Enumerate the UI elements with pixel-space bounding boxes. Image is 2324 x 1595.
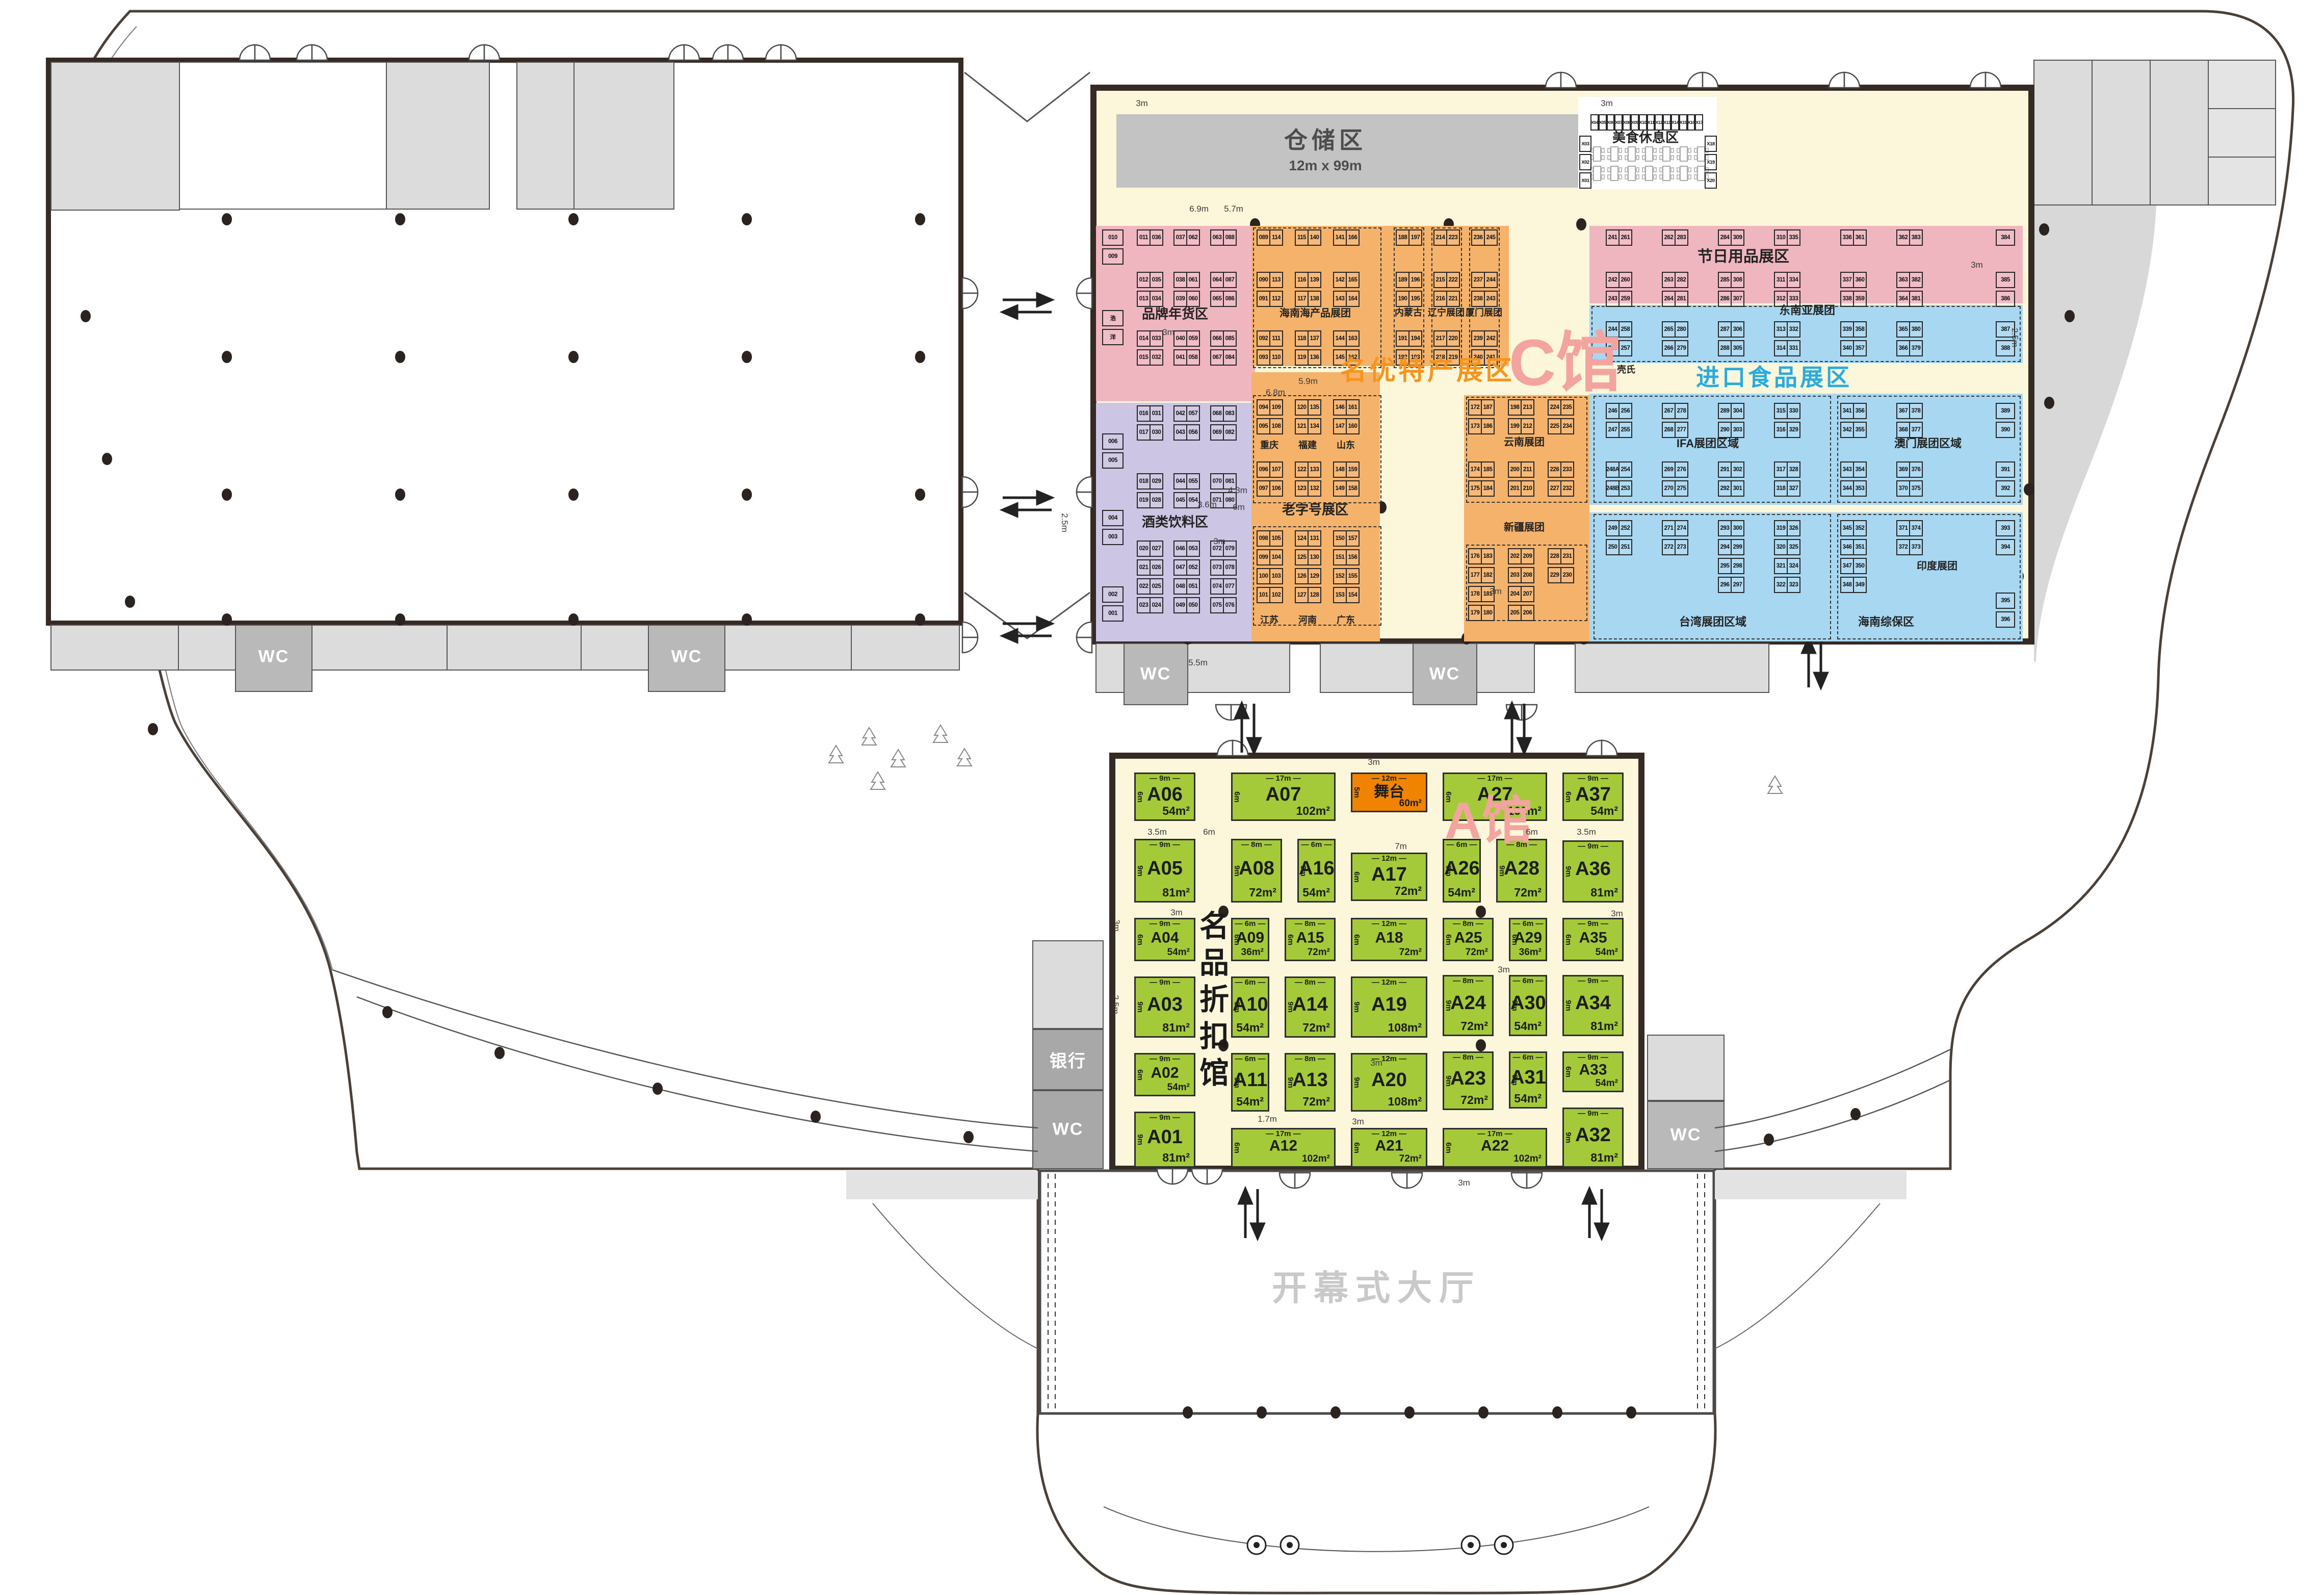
booth-314-331[interactable]: 314331 xyxy=(1774,340,1800,356)
booth-272-273[interactable]: 272273 xyxy=(1662,539,1688,555)
booth-365-380[interactable]: 365380 xyxy=(1896,321,1923,338)
column-dot xyxy=(395,613,405,626)
booth-A17[interactable]: — 12m —6mA1772m² xyxy=(1351,853,1427,901)
booth-number: 035 xyxy=(1150,273,1162,287)
booth-A25[interactable]: — 8m —6mA2572m² xyxy=(1443,918,1494,961)
booth-075-076[interactable]: 075076 xyxy=(1210,597,1237,613)
booth-371-374[interactable]: 371374 xyxy=(1896,520,1923,536)
booth-number: 317 xyxy=(1775,462,1787,477)
booth-number: 185 xyxy=(1481,462,1494,477)
booth-151-156[interactable]: 151156 xyxy=(1333,549,1360,565)
booth-227-232[interactable]: 227232 xyxy=(1548,480,1574,497)
booth-115-140[interactable]: 115140 xyxy=(1295,229,1321,246)
booth-248A-254[interactable]: 248A254 xyxy=(1606,461,1632,478)
booth-319-326[interactable]: 319326 xyxy=(1774,520,1800,536)
booth-153-154[interactable]: 153154 xyxy=(1333,587,1360,603)
booth-286-307[interactable]: 286307 xyxy=(1718,291,1744,307)
booth-203-208[interactable]: 203208 xyxy=(1508,567,1534,583)
booth-A16[interactable]: — 6m —9mA1654m² xyxy=(1297,839,1336,903)
booth-372-373[interactable]: 372373 xyxy=(1896,539,1923,555)
booth-322-323[interactable]: 322323 xyxy=(1774,577,1800,593)
booth-095-108[interactable]: 095108 xyxy=(1257,418,1283,434)
dimension-label: 3.6m xyxy=(1197,500,1217,510)
booth-296-297[interactable]: 296297 xyxy=(1718,577,1744,593)
booth-number: 066 xyxy=(1211,331,1223,346)
booth-X04[interactable]: X04 xyxy=(1590,114,1599,131)
booth-391[interactable]: 391 xyxy=(1996,461,2015,478)
booth-014-033[interactable]: 014033 xyxy=(1137,330,1163,347)
booth-number: 284 xyxy=(1719,230,1731,245)
booth-A09[interactable]: — 6m —6mA0936m² xyxy=(1231,918,1269,961)
booth-389[interactable]: 389 xyxy=(1996,403,2015,419)
door-icon xyxy=(1077,278,1092,308)
booth-number: 091 xyxy=(1258,292,1269,306)
booth-202-209[interactable]: 202209 xyxy=(1508,548,1534,564)
booth-338-359[interactable]: 338359 xyxy=(1840,291,1867,307)
booth-239-242[interactable]: 239242 xyxy=(1471,330,1498,347)
booth-A35[interactable]: — 9m —6mA3554m² xyxy=(1562,918,1624,961)
booth-X05[interactable]: X05 xyxy=(1599,114,1607,131)
booth-A03[interactable]: — 9m —9mA0381m² xyxy=(1134,976,1195,1038)
booth-A22[interactable]: — 17m —6mA22102m² xyxy=(1443,1128,1547,1168)
booth-number: 208 xyxy=(1521,568,1533,582)
booth-040-059[interactable]: 040059 xyxy=(1173,330,1200,347)
booth-394[interactable]: 394 xyxy=(1996,539,2015,555)
booth-288-305[interactable]: 288305 xyxy=(1718,340,1744,356)
booth-X19[interactable]: X19 xyxy=(1705,154,1717,170)
booth-020-027[interactable]: 020027 xyxy=(1137,541,1163,557)
booth-number: 159 xyxy=(1346,462,1359,477)
booth-A07[interactable]: — 17m —6mA07102m² xyxy=(1231,773,1336,821)
booth-068-083[interactable]: 068083 xyxy=(1210,405,1237,422)
booth-363-382[interactable]: 363382 xyxy=(1896,272,1923,288)
booth-348-349[interactable]: 348349 xyxy=(1840,577,1867,593)
booth-205-206[interactable]: 205206 xyxy=(1508,605,1534,621)
booth-number: 381 xyxy=(1909,292,1922,306)
chair-icon xyxy=(1660,156,1662,160)
booth-number: X18 xyxy=(1706,137,1716,151)
booth-342-355[interactable]: 342355 xyxy=(1840,422,1867,438)
booth-number: 230 xyxy=(1560,568,1573,582)
booth-124-131[interactable]: 124131 xyxy=(1295,530,1321,547)
booth-X02[interactable]: X02 xyxy=(1579,154,1591,170)
booth-099-104[interactable]: 099104 xyxy=(1257,549,1283,565)
booth-number: 259 xyxy=(1618,292,1631,306)
booth-142-165[interactable]: 142165 xyxy=(1333,272,1360,288)
table-icon xyxy=(1663,147,1670,161)
booth-A12[interactable]: — 17m —6mA12102m² xyxy=(1231,1128,1336,1168)
column-dot xyxy=(395,351,405,363)
booth-199-212[interactable]: 199212 xyxy=(1508,418,1534,434)
booth-038-061[interactable]: 038061 xyxy=(1173,272,1200,288)
booth-089-114[interactable]: 089114 xyxy=(1257,229,1283,246)
booth-number: 276 xyxy=(1675,462,1687,477)
booth-096-107[interactable]: 096107 xyxy=(1257,461,1283,478)
booth-341-356[interactable]: 341356 xyxy=(1840,403,1867,419)
booth-101-102[interactable]: 101102 xyxy=(1257,587,1283,603)
booth-A15[interactable]: — 8m —6mA1572m² xyxy=(1285,918,1336,961)
booth-366-379[interactable]: 366379 xyxy=(1896,340,1923,356)
booth-337-360[interactable]: 337360 xyxy=(1840,272,1867,288)
booth-012-035[interactable]: 012035 xyxy=(1137,272,1163,288)
booth-area: 54m² xyxy=(1167,947,1190,958)
dimension-label: 3m xyxy=(1370,1058,1382,1068)
booth-002[interactable]: 002 xyxy=(1102,586,1124,603)
booth-118-137[interactable]: 118137 xyxy=(1295,330,1321,347)
booth-number: 242 xyxy=(1484,331,1497,346)
booth-116-139[interactable]: 116139 xyxy=(1295,272,1321,288)
booth-number: 355 xyxy=(1853,423,1866,437)
booth-120-135[interactable]: 120135 xyxy=(1295,399,1321,416)
booth-number: 146 xyxy=(1334,400,1346,415)
booth-188-197[interactable]: 188197 xyxy=(1396,229,1422,246)
booth-225-234[interactable]: 225234 xyxy=(1548,418,1574,434)
booth-number: 323 xyxy=(1787,578,1799,592)
booth-A14[interactable]: — 8m —9mA1472m² xyxy=(1285,976,1336,1038)
booth-384[interactable]: 384 xyxy=(1996,229,2015,246)
booth-247-255[interactable]: 247255 xyxy=(1606,422,1632,438)
column-dot xyxy=(742,213,752,225)
booth-019-028[interactable]: 019028 xyxy=(1137,492,1163,508)
booth-X15[interactable]: X15 xyxy=(1679,114,1687,131)
booth-021-026[interactable]: 021026 xyxy=(1137,559,1163,576)
booth-346-351[interactable]: 346351 xyxy=(1840,539,1867,555)
booth-228-231[interactable]: 228231 xyxy=(1548,548,1574,564)
booth-238-243[interactable]: 238243 xyxy=(1471,291,1498,307)
booth-336-361[interactable]: 336361 xyxy=(1840,229,1867,246)
booth-141-166[interactable]: 141166 xyxy=(1333,229,1360,246)
booth-344-353[interactable]: 344353 xyxy=(1840,480,1867,497)
booth-248B-253[interactable]: 248B253 xyxy=(1606,480,1632,497)
booth-id: A22 xyxy=(1444,1138,1546,1155)
booth-266-279[interactable]: 266279 xyxy=(1662,340,1688,356)
booth-370-375[interactable]: 370375 xyxy=(1896,480,1923,497)
booth-265-280[interactable]: 265280 xyxy=(1662,321,1688,338)
booth-X16[interactable]: X16 xyxy=(1687,114,1695,131)
booth-339-358[interactable]: 339358 xyxy=(1840,321,1867,338)
booth-A21[interactable]: — 12m —6mA2172m² xyxy=(1351,1128,1427,1168)
booth-201-210[interactable]: 201210 xyxy=(1508,480,1534,497)
booth-316-329[interactable]: 316329 xyxy=(1774,422,1800,438)
booth-392[interactable]: 392 xyxy=(1996,480,2015,497)
booth-A10[interactable]: — 6m —9mA1054m² xyxy=(1231,976,1269,1038)
booth-X18[interactable]: X18 xyxy=(1705,136,1717,152)
booth-393[interactable]: 393 xyxy=(1996,520,2015,536)
booth-119-136[interactable]: 119136 xyxy=(1295,349,1321,366)
booth-385[interactable]: 385 xyxy=(1996,272,2015,288)
booth-345-352[interactable]: 345352 xyxy=(1840,520,1867,536)
booth-X03[interactable]: X03 xyxy=(1579,136,1591,152)
booth-369-376[interactable]: 369376 xyxy=(1896,461,1923,478)
booth-stage[interactable]: — 12m —5m舞台60m² xyxy=(1351,773,1427,812)
booth-A18[interactable]: — 12m —6mA1872m² xyxy=(1351,918,1427,961)
booth-018-029[interactable]: 018029 xyxy=(1137,473,1163,490)
booth-number: 370 xyxy=(1897,481,1909,496)
booth-292-301[interactable]: 292301 xyxy=(1718,480,1744,497)
booth-177-182[interactable]: 177182 xyxy=(1468,567,1495,583)
booth-017-030[interactable]: 017030 xyxy=(1137,424,1163,441)
booth-065-086[interactable]: 065086 xyxy=(1210,291,1237,307)
booth-043-056[interactable]: 043056 xyxy=(1173,424,1200,441)
booth-number: 182 xyxy=(1481,568,1494,582)
booth-X01[interactable]: X01 xyxy=(1579,172,1591,189)
booth-367-378[interactable]: 367378 xyxy=(1896,403,1923,419)
booth-073-078[interactable]: 073078 xyxy=(1210,559,1237,576)
booth-214-223[interactable]: 214223 xyxy=(1433,229,1460,246)
booth-215-222[interactable]: 215222 xyxy=(1433,272,1460,288)
booth-190-195[interactable]: 190195 xyxy=(1396,291,1422,307)
booth-148-159[interactable]: 148159 xyxy=(1333,461,1360,478)
booth-number: 024 xyxy=(1150,598,1162,612)
dimension-label: 3m xyxy=(1611,909,1623,919)
booth-311-334[interactable]: 311334 xyxy=(1774,272,1800,288)
tree-icon xyxy=(891,750,905,767)
booth-216-221[interactable]: 216221 xyxy=(1433,291,1460,307)
booth-362-383[interactable]: 362383 xyxy=(1896,229,1923,246)
food-rest-area-label: 美食休息区 xyxy=(1612,127,1679,146)
booth-011-036[interactable]: 011036 xyxy=(1137,229,1163,246)
booth-023-024[interactable]: 023024 xyxy=(1137,597,1163,613)
booth-097-106[interactable]: 097106 xyxy=(1257,480,1283,497)
booth-191-194[interactable]: 191194 xyxy=(1396,330,1422,347)
booth-A11[interactable]: — 6m —9mA1154m² xyxy=(1231,1053,1269,1112)
booth-A06[interactable]: — 9m —6mA0654m² xyxy=(1134,773,1195,821)
booth-149-158[interactable]: 149158 xyxy=(1333,480,1360,497)
booth-395[interactable]: 395 xyxy=(1996,593,2015,609)
booth-263-282[interactable]: 263282 xyxy=(1662,272,1688,288)
booth-044-055[interactable]: 044055 xyxy=(1173,473,1200,490)
booth-243-259[interactable]: 243259 xyxy=(1606,291,1632,307)
booth-264-281[interactable]: 264281 xyxy=(1662,291,1688,307)
booth-洋[interactable]: 洋 xyxy=(1102,329,1124,345)
booth-041-058[interactable]: 041058 xyxy=(1173,349,1200,366)
booth-217-220[interactable]: 217220 xyxy=(1433,330,1460,347)
booth-016-031[interactable]: 016031 xyxy=(1137,405,1163,422)
booth-229-230[interactable]: 229230 xyxy=(1548,567,1574,583)
chair-icon xyxy=(1688,175,1691,179)
booth-175-184[interactable]: 175184 xyxy=(1468,480,1495,497)
booth-237-244[interactable]: 237244 xyxy=(1471,272,1498,288)
booth-A02[interactable]: — 9m —6mA0254m² xyxy=(1134,1053,1195,1096)
booth-number: 389 xyxy=(1997,404,2014,418)
booth-189-196[interactable]: 189196 xyxy=(1396,272,1422,288)
booth-number: 227 xyxy=(1549,481,1560,496)
booth-123-132[interactable]: 123132 xyxy=(1295,480,1321,497)
booth-number: 028 xyxy=(1150,493,1162,507)
booth-094-109[interactable]: 094109 xyxy=(1257,399,1283,416)
booth-X17[interactable]: X17 xyxy=(1695,114,1703,131)
booth-005[interactable]: 005 xyxy=(1102,452,1124,469)
booth-001[interactable]: 001 xyxy=(1102,605,1124,622)
booth-321-324[interactable]: 321324 xyxy=(1774,558,1800,574)
booth-A08[interactable]: — 8m —9mA0872m² xyxy=(1231,839,1282,903)
booth-004[interactable]: 004 xyxy=(1102,510,1124,526)
table-icon xyxy=(1698,166,1705,181)
booth-042-057[interactable]: 042057 xyxy=(1173,405,1200,422)
booth-048-051[interactable]: 048051 xyxy=(1173,578,1200,595)
booth-386[interactable]: 386 xyxy=(1996,291,2015,307)
booth-046-053[interactable]: 046053 xyxy=(1173,541,1200,557)
booth-126-129[interactable]: 126129 xyxy=(1295,568,1321,584)
booth-number: 338 xyxy=(1841,292,1853,306)
booth-A23[interactable]: — 8m —9mA2372m² xyxy=(1443,1051,1494,1110)
booth-093-110[interactable]: 093110 xyxy=(1257,349,1283,366)
booth-number: 254 xyxy=(1618,462,1631,477)
booth-number: 384 xyxy=(1997,230,2014,245)
dimension-label: 6.9m xyxy=(1189,204,1209,214)
booth-347-350[interactable]: 347350 xyxy=(1840,558,1867,574)
booth-121-134[interactable]: 121134 xyxy=(1295,418,1321,434)
booth-242-260[interactable]: 242260 xyxy=(1606,272,1632,288)
booth-270-275[interactable]: 270275 xyxy=(1662,480,1688,497)
booth-313-332[interactable]: 313332 xyxy=(1774,321,1800,338)
booth-area: 54m² xyxy=(1514,1092,1542,1105)
booth-249-252[interactable]: 249252 xyxy=(1606,520,1632,536)
booth-343-354[interactable]: 343354 xyxy=(1840,461,1867,478)
column-dot xyxy=(2024,483,2034,496)
booth-179-180[interactable]: 179180 xyxy=(1468,605,1495,621)
table-icon xyxy=(1680,166,1687,181)
booth-A34[interactable]: — 9m —9mA3481m² xyxy=(1562,975,1624,1036)
booth-003[interactable]: 003 xyxy=(1102,529,1124,545)
booth-315-330[interactable]: 315330 xyxy=(1774,403,1800,419)
booth-267-278[interactable]: 267278 xyxy=(1662,403,1688,419)
booth-A19[interactable]: — 12m —9mA19108m² xyxy=(1351,976,1427,1038)
booth-A24[interactable]: — 8m —9mA2472m² xyxy=(1443,975,1494,1036)
booth-A30[interactable]: — 6m —9mA3054m² xyxy=(1509,975,1547,1036)
booth-287-306[interactable]: 287306 xyxy=(1718,321,1744,338)
booth-037-062[interactable]: 037062 xyxy=(1173,229,1200,246)
booth-146-161[interactable]: 146161 xyxy=(1333,399,1360,416)
booth-A32[interactable]: — 9m —9mA3281m² xyxy=(1562,1108,1624,1168)
booth-246-256[interactable]: 246256 xyxy=(1606,403,1632,419)
taiwan-group-label: 台湾展团区域 xyxy=(1679,613,1746,629)
dimension-label: 6m xyxy=(1233,502,1245,512)
booth-074-077[interactable]: 074077 xyxy=(1210,578,1237,595)
booth-295-298[interactable]: 295298 xyxy=(1718,558,1744,574)
booth-064-087[interactable]: 064087 xyxy=(1210,272,1237,288)
booth-174-185[interactable]: 174185 xyxy=(1468,461,1495,478)
booth-173-186[interactable]: 173186 xyxy=(1468,418,1495,434)
booth-number: 184 xyxy=(1481,481,1494,496)
booth-285-308[interactable]: 285308 xyxy=(1718,272,1744,288)
booth-317-328[interactable]: 317328 xyxy=(1774,461,1800,478)
booth-number: 341 xyxy=(1841,404,1853,418)
booth-A37[interactable]: — 9m —6mA3754m² xyxy=(1562,773,1624,821)
booth-A20[interactable]: — 12m —9mA20108m² xyxy=(1351,1053,1427,1112)
booth-340-357[interactable]: 340357 xyxy=(1840,340,1867,356)
booth-049-050[interactable]: 049050 xyxy=(1173,597,1200,613)
booth-A29[interactable]: — 6m —6mA2936m² xyxy=(1509,918,1547,961)
entrance-column-core xyxy=(1501,1542,1507,1548)
dimension-label: 3.5m xyxy=(1577,827,1596,837)
booth-067-084[interactable]: 067084 xyxy=(1210,349,1237,366)
booth-number: 354 xyxy=(1853,462,1866,477)
booth-number: 041 xyxy=(1174,350,1186,365)
booth-A36[interactable]: — 9m —9mA3681m² xyxy=(1562,840,1624,903)
booth-A04[interactable]: — 9m —6mA0454m² xyxy=(1134,918,1195,961)
booth-A33[interactable]: — 9m —6mA3354m² xyxy=(1562,1051,1624,1092)
booth-X20[interactable]: X20 xyxy=(1705,172,1717,189)
table-icon xyxy=(1646,147,1653,161)
booth-291-302[interactable]: 291302 xyxy=(1718,461,1744,478)
booth-010[interactable]: 010 xyxy=(1102,229,1124,246)
booth-269-276[interactable]: 269276 xyxy=(1662,461,1688,478)
booth-number: 201 xyxy=(1509,481,1521,496)
booth-152-155[interactable]: 152155 xyxy=(1333,568,1360,584)
booth-A05[interactable]: — 9m —9mA0581m² xyxy=(1134,839,1195,903)
booth-396[interactable]: 396 xyxy=(1996,611,2015,628)
booth-number: 洋 xyxy=(1103,330,1122,344)
booth-320-325[interactable]: 320325 xyxy=(1774,539,1800,555)
door-icon xyxy=(962,622,978,653)
booth-294-299[interactable]: 294299 xyxy=(1718,539,1744,555)
booth-015-032[interactable]: 015032 xyxy=(1137,349,1163,366)
booth-127-128[interactable]: 127128 xyxy=(1295,587,1321,603)
booth-090-113[interactable]: 090113 xyxy=(1257,272,1283,288)
booth-318-327[interactable]: 318327 xyxy=(1774,480,1800,497)
booth-176-183[interactable]: 176183 xyxy=(1468,548,1495,564)
booth-098-105[interactable]: 098105 xyxy=(1257,530,1283,547)
booth-147-160[interactable]: 147160 xyxy=(1333,418,1360,434)
booth-number: 379 xyxy=(1909,341,1922,355)
booth-226-233[interactable]: 226233 xyxy=(1548,461,1574,478)
booth-047-052[interactable]: 047052 xyxy=(1173,559,1200,576)
booth-236-245[interactable]: 236245 xyxy=(1471,229,1498,246)
booth-A13[interactable]: — 8m —9mA1372m² xyxy=(1285,1053,1336,1112)
booth-250-251[interactable]: 250251 xyxy=(1606,539,1632,555)
booth-浩[interactable]: 浩 xyxy=(1102,310,1124,326)
booth-125-130[interactable]: 125130 xyxy=(1295,549,1321,565)
liaoning-label: 辽宁展团 xyxy=(1428,305,1465,319)
booth-number: 356 xyxy=(1853,404,1866,418)
booth-number: 059 xyxy=(1186,331,1199,346)
booth-A01[interactable]: — 9m —9mA0181m² xyxy=(1134,1112,1195,1168)
booth-number: 116 xyxy=(1296,273,1308,287)
booth-144-163[interactable]: 144163 xyxy=(1333,330,1360,347)
booth-100-103[interactable]: 100103 xyxy=(1257,568,1283,584)
booth-262-283[interactable]: 262283 xyxy=(1662,229,1688,246)
booth-069-082[interactable]: 069082 xyxy=(1210,424,1237,441)
booth-364-381[interactable]: 364381 xyxy=(1896,291,1923,307)
booth-172-187[interactable]: 172187 xyxy=(1468,399,1495,416)
booth-063-088[interactable]: 063088 xyxy=(1210,229,1237,246)
booth-289-304[interactable]: 289304 xyxy=(1718,403,1744,419)
booth-number: 327 xyxy=(1787,481,1799,496)
booth-045-054[interactable]: 045054 xyxy=(1173,492,1200,508)
booth-390[interactable]: 390 xyxy=(1996,422,2015,438)
booth-271-274[interactable]: 271274 xyxy=(1662,520,1688,536)
booth-006[interactable]: 006 xyxy=(1102,433,1124,450)
booth-A31[interactable]: — 6m —9mA3154m² xyxy=(1509,1051,1547,1109)
booth-092-111[interactable]: 092111 xyxy=(1257,330,1283,347)
booth-id: A23 xyxy=(1444,1068,1492,1090)
booth-number: 153 xyxy=(1334,588,1346,602)
booth-150-157[interactable]: 150157 xyxy=(1333,530,1360,547)
booth-200-211[interactable]: 200211 xyxy=(1508,461,1534,478)
booth-022-025[interactable]: 022025 xyxy=(1137,578,1163,595)
booth-204-207[interactable]: 204207 xyxy=(1508,586,1534,602)
booth-area: 102m² xyxy=(1302,1153,1330,1165)
booth-number: X02 xyxy=(1580,155,1590,169)
booth-293-300[interactable]: 293300 xyxy=(1718,520,1744,536)
booth-009[interactable]: 009 xyxy=(1102,248,1124,265)
booth-066-085[interactable]: 066085 xyxy=(1210,330,1237,347)
booth-241-261[interactable]: 241261 xyxy=(1606,229,1632,246)
chair-icon xyxy=(1636,156,1639,160)
booth-number: 364 xyxy=(1897,292,1909,306)
booth-122-133[interactable]: 122133 xyxy=(1295,461,1321,478)
